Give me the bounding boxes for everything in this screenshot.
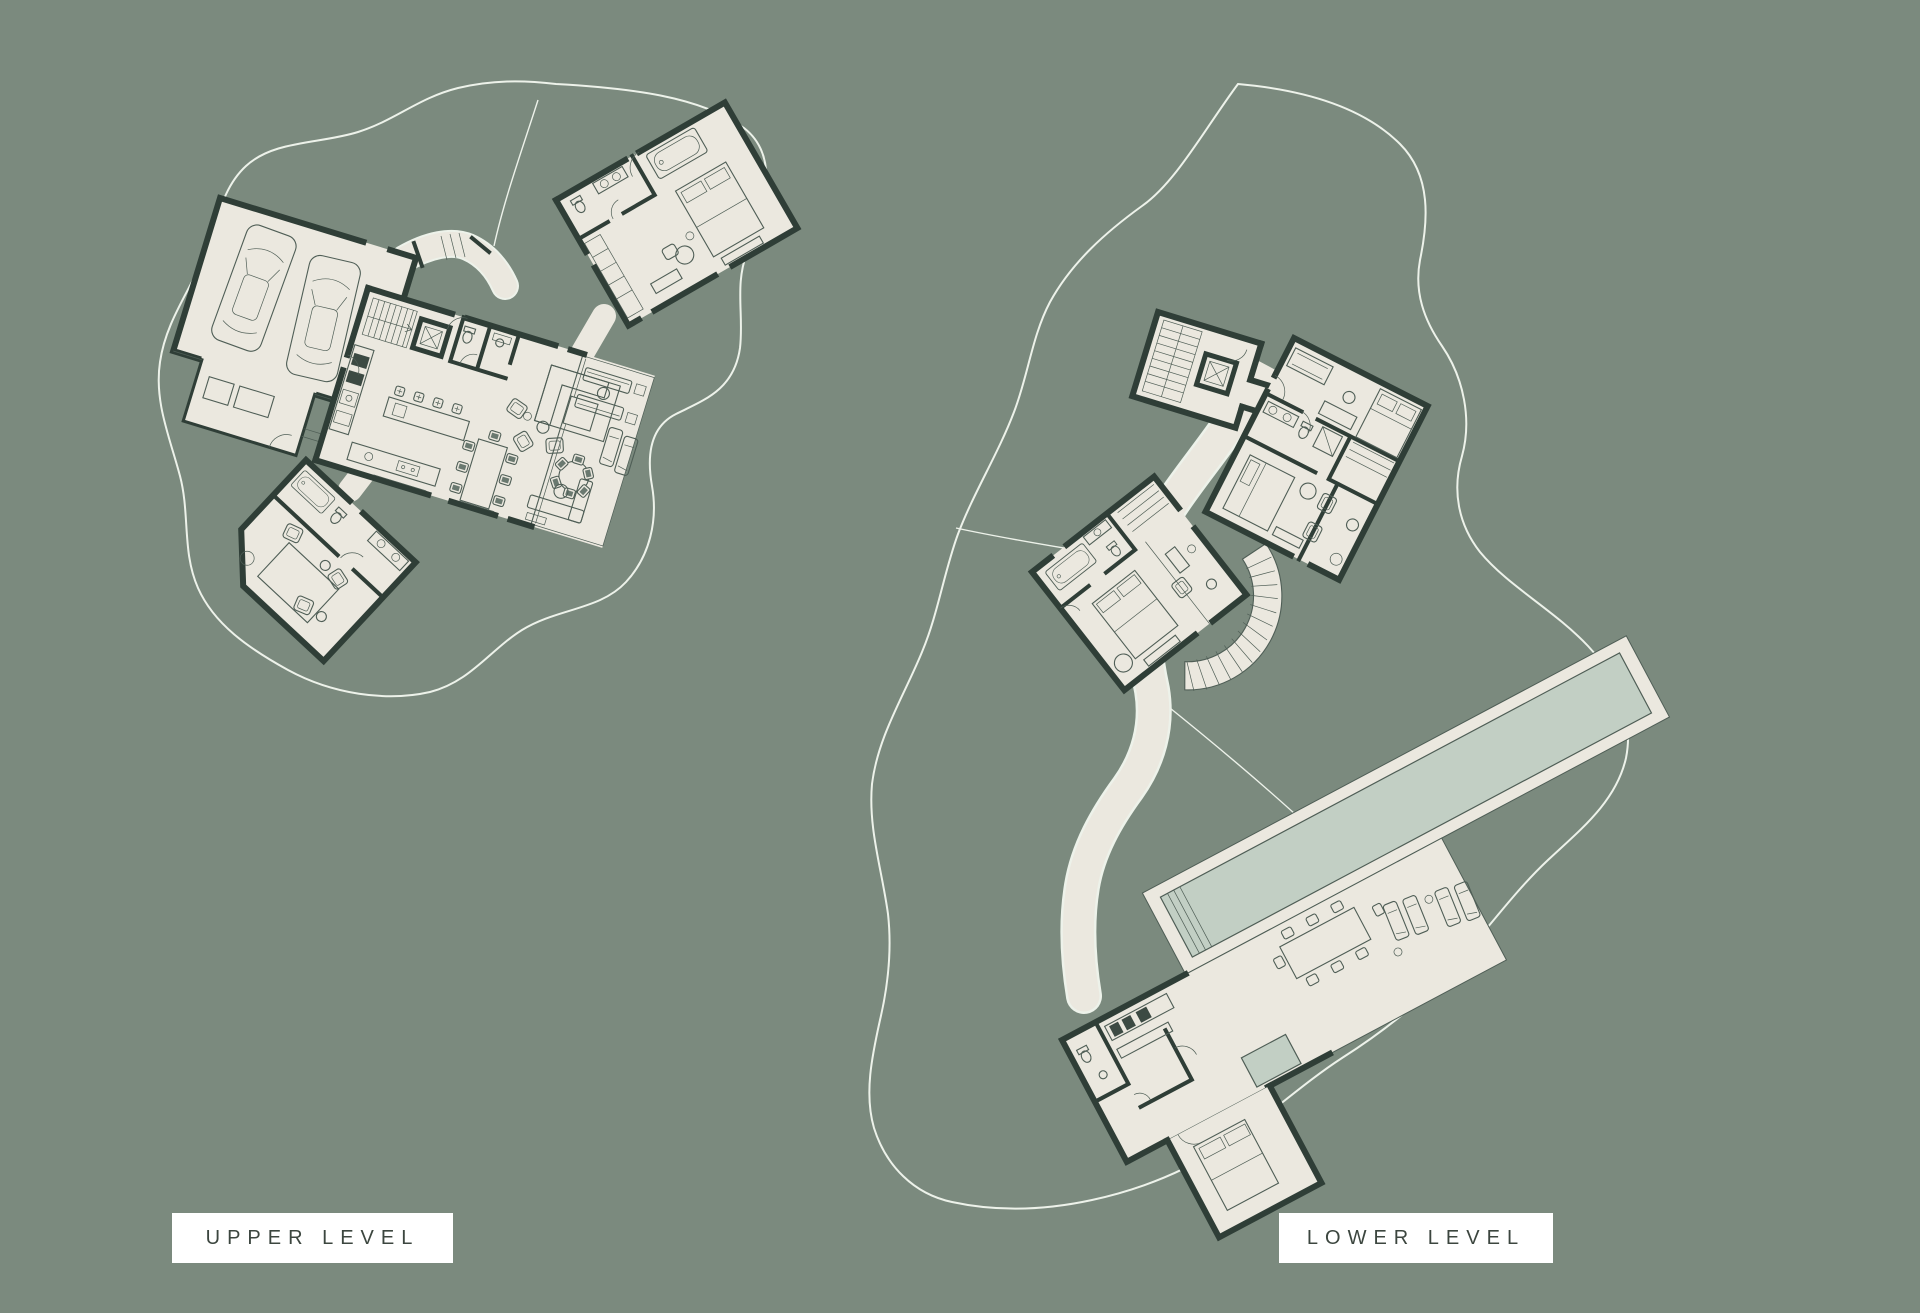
entry-bridge: [404, 233, 505, 286]
lower-level-label-text: LOWER LEVEL: [1307, 1227, 1525, 1250]
lower-level-plan: [869, 84, 1786, 1259]
upper-level-label-text: UPPER LEVEL: [206, 1227, 420, 1250]
elevator: [413, 319, 450, 356]
upper-level-plan: [155, 81, 798, 696]
pool-terrace-strip: [1019, 636, 1786, 1259]
guest-wing: [214, 460, 416, 661]
driveway-line-right: [494, 100, 538, 246]
floor-plan-canvas: [0, 0, 1920, 1313]
master-wing: [556, 103, 797, 326]
lower-level-label: LOWER LEVEL: [1279, 1213, 1553, 1263]
corridor-to-master-wing: [583, 316, 604, 352]
upper-level-label: UPPER LEVEL: [172, 1213, 453, 1263]
